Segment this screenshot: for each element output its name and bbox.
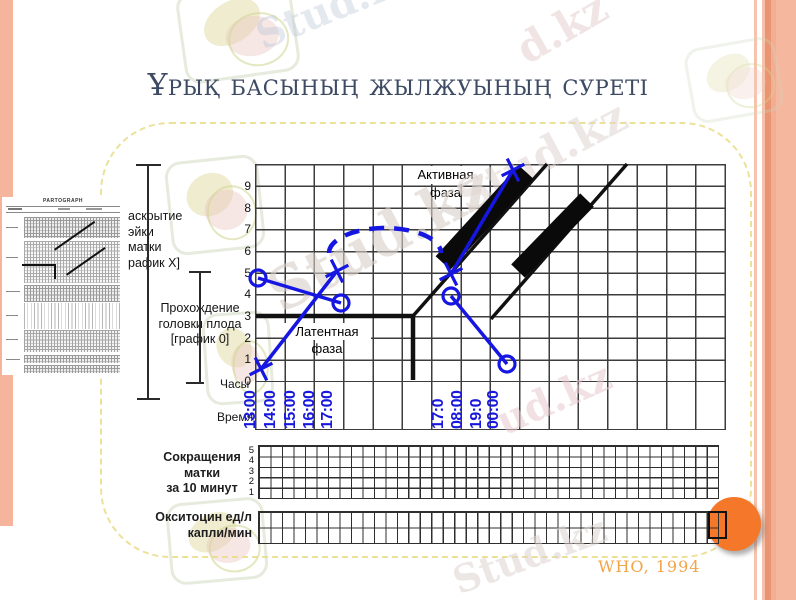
- descent-axis-label-line: Прохождение: [156, 301, 244, 317]
- dilation-axis-label-line: аскрытие: [128, 209, 190, 225]
- oxytocin-grid-highlight-cell: [708, 511, 727, 539]
- slide: { "slide": { "title": "Ұрық басының жылж…: [0, 0, 796, 600]
- y-tick: 4: [237, 287, 251, 301]
- time-tick: 16:00: [301, 391, 319, 429]
- oxytocin-label-line: Окситоцин ед/л: [150, 510, 252, 526]
- y-tick: 7: [237, 222, 251, 236]
- descent-axis-label-line: [график 0]: [156, 332, 244, 348]
- y-tick: 9: [237, 179, 251, 193]
- dilation-axis-label: аскрытие эйки матки рафик X]: [128, 209, 190, 271]
- citation: WHO, 1994: [598, 557, 748, 576]
- time-tick: 13:00: [242, 391, 260, 429]
- contraction-scale-tick: 4: [246, 455, 254, 466]
- thumbnail-title: PARTOGRAPH: [2, 198, 124, 204]
- latent-phase-label: Латентная фаза: [283, 323, 371, 340]
- time-tick: 17:00: [319, 391, 337, 429]
- time-tick: 17:0: [430, 399, 448, 429]
- time-tick: 14:00: [262, 391, 280, 429]
- time-tick: 19:0: [468, 399, 486, 429]
- time-tick: 08:00: [449, 391, 467, 429]
- partograph-thumbnail: PARTOGRAPH: [2, 197, 124, 375]
- dilation-axis-label-line: эйки матки: [128, 225, 190, 256]
- oxytocin-label: Окситоцин ед/л капли/мин: [150, 510, 252, 541]
- time-tick: 15:00: [282, 391, 300, 429]
- contractions-label: Сокращения матки за 10 минут: [158, 450, 246, 497]
- page-title: Ұрық басының жылжуының суреті: [48, 68, 748, 103]
- contraction-scale-tick: 1: [246, 487, 254, 498]
- contractions-label-line: за 10 минут: [158, 481, 246, 497]
- dilation-axis-label-line: рафик X]: [128, 256, 190, 272]
- y-tick: 5: [237, 266, 251, 280]
- y-tick: 1: [237, 352, 251, 366]
- y-tick: 6: [237, 244, 251, 258]
- hours-row-label: Часы: [220, 377, 249, 391]
- y-tick: 8: [237, 201, 251, 215]
- oxytocin-grid: [258, 511, 719, 544]
- contractions-label-line: матки: [158, 466, 246, 482]
- oxytocin-label-line: капли/мин: [150, 526, 252, 542]
- active-phase-label: Активная фаза: [403, 166, 488, 184]
- watermark-text: d.kz: [508, 0, 616, 74]
- contractions-grid: [258, 445, 719, 499]
- time-tick: 00:00: [485, 391, 503, 429]
- descent-axis-label-line: головки плода: [156, 317, 244, 333]
- contraction-scale-tick: 2: [246, 476, 254, 487]
- descent-axis-label: Прохождение головки плода [график 0]: [156, 301, 244, 348]
- contractions-label-line: Сокращения: [158, 450, 246, 466]
